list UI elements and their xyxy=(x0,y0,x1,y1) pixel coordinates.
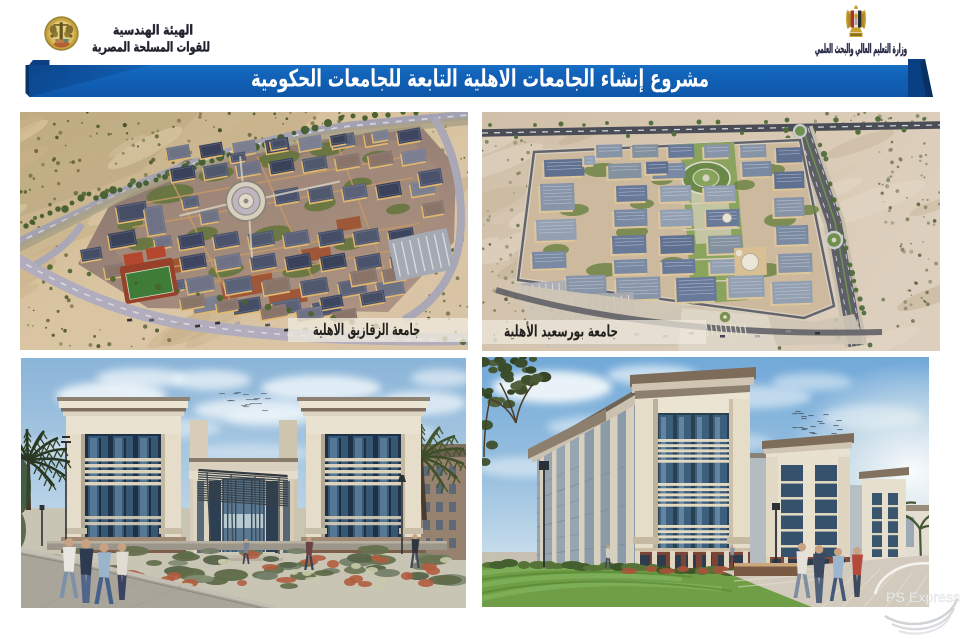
svg-text:PS Express: PS Express xyxy=(886,590,960,606)
